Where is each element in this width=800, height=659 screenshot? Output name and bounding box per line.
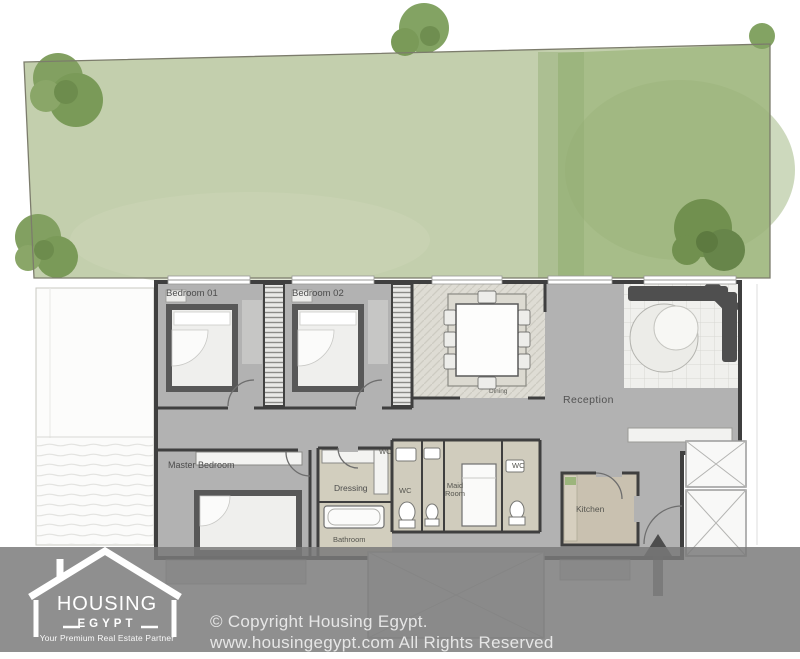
watermark-band: HOUSING EGYPT Your Premium Real Estate P… xyxy=(0,547,800,652)
copyright-line-1: © Copyright Housing Egypt. xyxy=(210,611,554,632)
room-label-reception: Reception xyxy=(563,395,614,406)
floorplan-page: Bedroom 01 Bedroom 02 Dining Reception M… xyxy=(0,0,800,659)
left-terrace xyxy=(36,288,154,545)
closet-strip xyxy=(264,284,284,406)
room-label-bathroom: Bathroom xyxy=(333,536,366,544)
dining-table xyxy=(444,291,530,389)
copyright-line-2: www.housingegypt.com All Rights Reserved xyxy=(210,632,554,653)
room-label-dressing: Dressing xyxy=(334,484,368,493)
bathtub xyxy=(324,506,384,528)
room-label-bedroom-02: Bedroom 02 xyxy=(292,289,344,299)
room-label-bedroom-01: Bedroom 01 xyxy=(166,289,218,299)
logo-name: HOUSING xyxy=(22,593,192,616)
tree-icon xyxy=(391,3,449,56)
housing-egypt-logo: HOUSING EGYPT Your Premium Real Estate P… xyxy=(22,547,192,651)
room-label-master-bedroom: Master Bedroom xyxy=(168,461,235,470)
copyright-text: © Copyright Housing Egypt. www.housingeg… xyxy=(210,611,554,653)
tree-icon xyxy=(749,23,775,49)
logo-subname: EGYPT xyxy=(22,618,192,630)
garden xyxy=(15,3,795,288)
room-label-wc-3: WC xyxy=(512,462,525,470)
room-label-wc-2: WC xyxy=(399,487,412,495)
room-label-dining: Dining xyxy=(489,389,507,396)
closet-strip xyxy=(392,284,412,406)
logo-tagline: Your Premium Real Estate Partner xyxy=(22,633,192,643)
elevator-shaft xyxy=(686,441,746,556)
room-label-wc-1: WC xyxy=(379,448,392,456)
room-label-kitchen: Kitchen xyxy=(576,505,604,514)
room-label-maid-room: Maid Room xyxy=(438,482,472,498)
